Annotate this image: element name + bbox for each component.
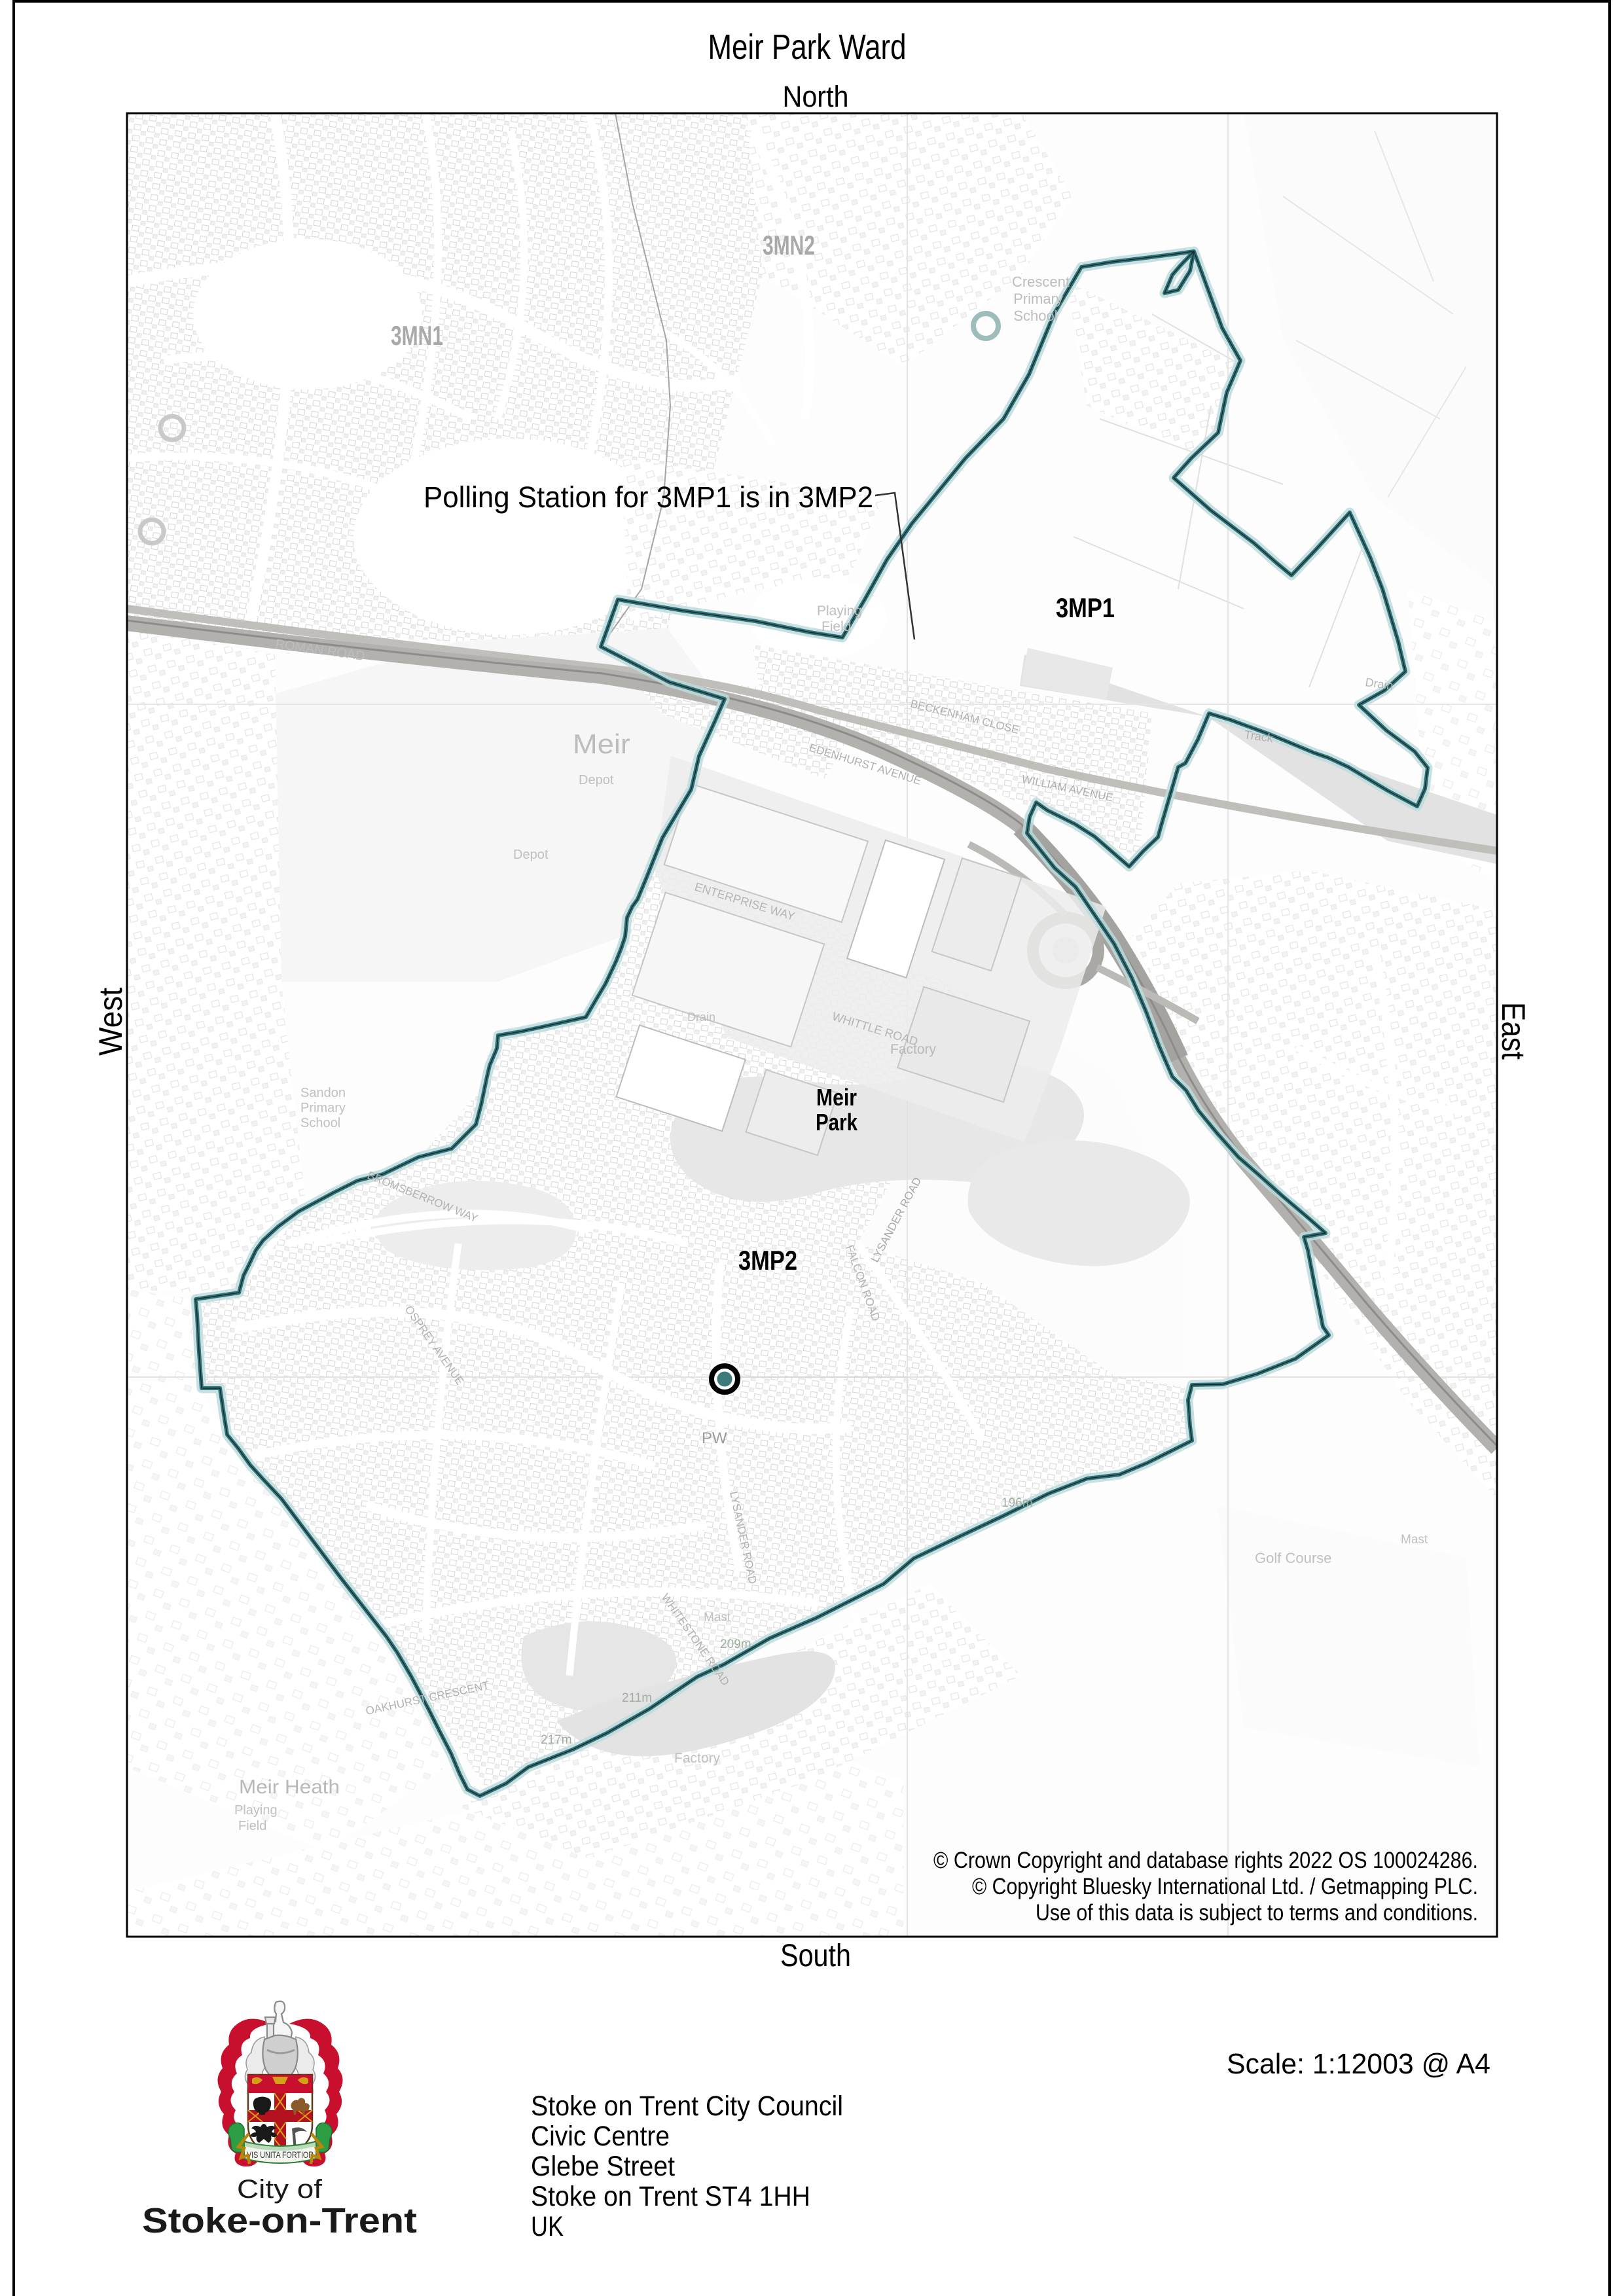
svg-text:Park: Park [816, 1109, 858, 1136]
svg-text:Polling Station for 3MP1 is in: Polling Station for 3MP1 is in 3MP2 [424, 480, 873, 514]
svg-text:East: East [1495, 1002, 1532, 1060]
svg-text:196m: 196m [1001, 1496, 1033, 1510]
svg-text:Mast: Mast [704, 1611, 731, 1624]
svg-text:Primary: Primary [300, 1101, 346, 1115]
svg-text:Glebe Street: Glebe Street [531, 2151, 675, 2182]
svg-text:Stoke-on-Trent: Stoke-on-Trent [142, 2201, 417, 2240]
svg-text:Playing: Playing [234, 1803, 278, 1818]
svg-text:Crescent: Crescent [1012, 274, 1070, 290]
svg-text:Field: Field [238, 1819, 266, 1833]
svg-text:Depot: Depot [513, 848, 549, 862]
svg-text:Stoke on Trent ST4 1HH: Stoke on Trent ST4 1HH [531, 2181, 810, 2212]
svg-text:211m: 211m [622, 1691, 652, 1705]
svg-text:© Copyright Bluesky Internatio: © Copyright Bluesky International Ltd. /… [972, 1874, 1478, 1899]
svg-text:School: School [300, 1116, 340, 1130]
svg-text:Meir Park Ward: Meir Park Ward [708, 27, 907, 67]
svg-text:Sandon: Sandon [300, 1086, 346, 1100]
svg-text:209m: 209m [720, 1638, 751, 1651]
svg-text:Depot: Depot [579, 773, 614, 787]
svg-text:Use of this data is subject to: Use of this data is subject to terms and… [1036, 1900, 1478, 1926]
svg-text:Scale: 1:12003 @ A4: Scale: 1:12003 @ A4 [1227, 2048, 1490, 2080]
svg-text:3MP2: 3MP2 [738, 1245, 797, 1276]
svg-text:Drain: Drain [687, 1011, 715, 1024]
svg-text:PW: PW [702, 1429, 727, 1447]
svg-text:Civic Centre: Civic Centre [531, 2121, 670, 2152]
svg-text:Meir Heath: Meir Heath [239, 1776, 340, 1798]
svg-text:Mast: Mast [1401, 1533, 1428, 1547]
svg-text:Meir: Meir [573, 728, 630, 759]
svg-text:Primary: Primary [1013, 291, 1063, 307]
svg-text:3MN1: 3MN1 [391, 320, 443, 351]
svg-text:Field: Field [821, 619, 852, 634]
svg-text:School: School [1013, 308, 1057, 324]
svg-text:Stoke on Trent City Council: Stoke on Trent City Council [531, 2090, 843, 2122]
svg-text:3MP1: 3MP1 [1056, 592, 1115, 623]
svg-text:City of: City of [237, 2175, 323, 2204]
svg-text:UK: UK [531, 2211, 564, 2242]
svg-text:South: South [780, 1939, 851, 1973]
svg-text:Meir: Meir [816, 1084, 857, 1111]
svg-text:217m: 217m [541, 1733, 572, 1747]
svg-text:Playing: Playing [817, 603, 862, 619]
svg-text:Factory: Factory [674, 1751, 721, 1766]
svg-text:3MN2: 3MN2 [763, 230, 815, 260]
svg-text:North: North [783, 80, 849, 113]
svg-text:© Crown Copyright and database: © Crown Copyright and database rights 20… [933, 1848, 1478, 1873]
svg-text:Golf Course: Golf Course [1255, 1550, 1331, 1566]
svg-text:VIS UNITA FORTIOR: VIS UNITA FORTIOR [247, 2149, 314, 2160]
svg-text:West: West [92, 988, 129, 1056]
